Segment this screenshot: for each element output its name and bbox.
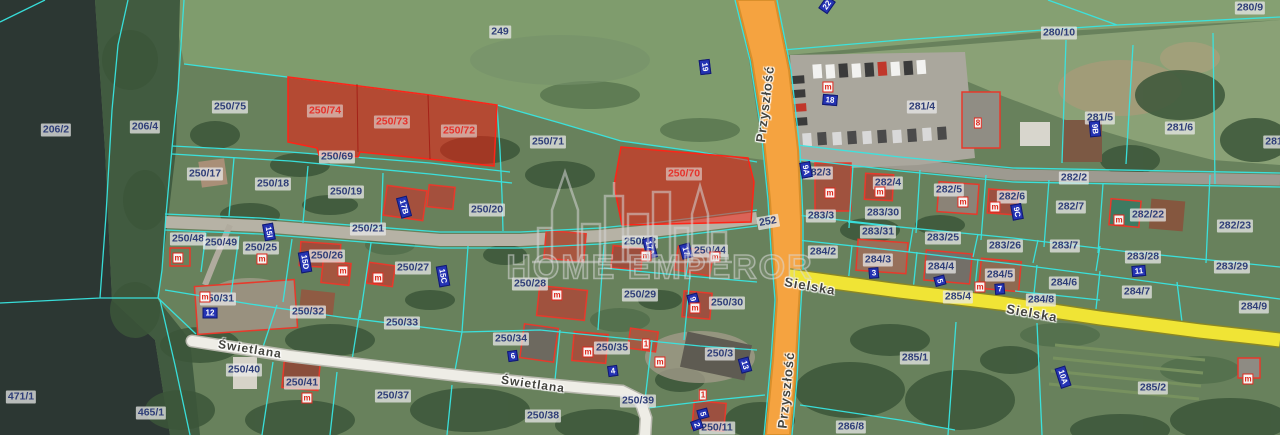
highlighted-parcel-label[interactable]: 250/74 — [307, 105, 343, 118]
building-marker: m — [709, 252, 720, 263]
street-name-label: Przyszłość — [775, 351, 798, 429]
address-badge: 15I — [262, 223, 276, 242]
street-name-label: Przyszłość — [753, 65, 777, 143]
address-badge: 4 — [607, 365, 619, 377]
address-badge: 11 — [1131, 265, 1146, 277]
parcel-label[interactable]: 283/31 — [860, 226, 896, 239]
parcel-label[interactable]: 283/30 — [865, 207, 901, 220]
parcel-label[interactable]: 284/9 — [1239, 301, 1269, 314]
building-marker: m — [974, 282, 985, 293]
parcel-label[interactable]: 283/3 — [806, 210, 836, 223]
building-marker: m — [654, 357, 665, 368]
parcel-label[interactable]: 250/49 — [203, 237, 239, 250]
parcel-label[interactable]: 250/11 — [699, 422, 735, 435]
building-marker: m — [689, 303, 700, 314]
parcel-label[interactable]: 284/4 — [926, 261, 956, 274]
address-badge: 5 — [933, 275, 946, 288]
parcel-label[interactable]: 252 — [756, 214, 779, 231]
address-badge: 22 — [818, 0, 836, 14]
address-badge: 9B — [1089, 120, 1101, 137]
parcel-label[interactable]: 281 — [1263, 136, 1280, 149]
building-marker: 1 — [642, 339, 650, 350]
parcel-label[interactable]: 250/21 — [350, 223, 386, 236]
building-marker: m — [824, 188, 835, 199]
parcel-label[interactable]: 283/25 — [925, 232, 961, 245]
parcel-label[interactable]: 250/3 — [705, 348, 735, 361]
parcel-label[interactable]: 250/27 — [395, 262, 431, 275]
building-marker: 1 — [699, 390, 707, 401]
parcel-label[interactable]: 282/5 — [934, 184, 964, 197]
street-name-label: Świetlana — [500, 373, 566, 396]
parcel-label[interactable]: 284/3 — [863, 254, 893, 267]
parcel-label[interactable]: 250/20 — [469, 204, 505, 217]
parcel-label[interactable]: 285/1 — [900, 352, 930, 365]
address-badge: 19 — [699, 59, 712, 75]
parcel-label[interactable]: 250/41 — [284, 377, 320, 390]
building-marker: m — [337, 266, 348, 277]
address-badge: 17B — [396, 196, 412, 219]
parcel-label[interactable]: 250/18 — [255, 178, 291, 191]
address-badge: 13 — [738, 356, 752, 373]
parcel-label[interactable]: 282/2 — [1059, 172, 1089, 185]
parcel-label[interactable]: 250/69 — [319, 151, 355, 164]
parcel-label[interactable]: 250/39 — [620, 395, 656, 408]
building-marker: 8 — [974, 118, 982, 129]
parcel-label[interactable]: 281/4 — [907, 101, 937, 114]
building-marker: m — [989, 202, 1000, 213]
building-marker: m — [640, 251, 651, 262]
street-name-label: Świetlana — [217, 337, 283, 361]
parcel-label[interactable]: 250/37 — [375, 390, 411, 403]
parcel-label[interactable]: 282/7 — [1056, 201, 1086, 214]
building-marker: m — [301, 393, 312, 404]
building-marker: m — [957, 197, 968, 208]
parcel-label[interactable]: 285/2 — [1138, 382, 1168, 395]
building-marker: m — [372, 273, 383, 284]
parcel-label[interactable]: 250/28 — [512, 278, 548, 291]
parcel-label[interactable]: 250/48 — [170, 233, 206, 246]
building-marker: m — [822, 82, 833, 93]
map-labels-layer: 249206/2206/4250/75250/69250/71250/17250… — [0, 0, 1280, 435]
highlighted-parcel-label[interactable]: 250/73 — [374, 116, 410, 129]
building-marker: m — [256, 254, 267, 265]
parcel-label[interactable]: 284/6 — [1049, 277, 1079, 290]
street-name-label: Sielska — [783, 274, 837, 298]
parcel-label[interactable]: 250/17 — [187, 168, 223, 181]
parcel-label[interactable]: 249 — [489, 26, 511, 39]
parcel-label[interactable]: 250/29 — [622, 289, 658, 302]
highlighted-parcel-label[interactable]: 250/70 — [666, 168, 702, 181]
parcel-label[interactable]: 283/28 — [1125, 251, 1161, 264]
building-marker: m — [551, 290, 562, 301]
building-marker: m — [874, 187, 885, 198]
building-marker: m — [172, 253, 183, 264]
parcel-label[interactable]: 250/30 — [709, 297, 745, 310]
parcel-label[interactable]: 250/33 — [384, 317, 420, 330]
address-badge: 7 — [994, 283, 1005, 295]
address-badge: 12 — [203, 308, 218, 319]
parcel-label[interactable]: 206/4 — [130, 121, 160, 134]
building-marker: m — [1242, 374, 1253, 385]
parcel-label[interactable]: 250/19 — [328, 186, 364, 199]
parcel-label[interactable]: 284/7 — [1122, 286, 1152, 299]
parcel-label[interactable]: 286/8 — [836, 421, 866, 434]
parcel-label[interactable]: 283/26 — [987, 240, 1023, 253]
parcel-label[interactable]: 465/1 — [136, 407, 166, 420]
parcel-label[interactable]: 280/10 — [1041, 27, 1077, 40]
address-badge: 10A — [1055, 365, 1072, 388]
parcel-label[interactable]: 282/22 — [1130, 209, 1166, 222]
parcel-label[interactable]: 283/29 — [1214, 261, 1250, 274]
parcel-label[interactable]: 250/32 — [290, 306, 326, 319]
parcel-label[interactable]: 250/75 — [212, 101, 248, 114]
parcel-label[interactable]: 250/26 — [309, 250, 345, 263]
map-viewport[interactable]: 249206/2206/4250/75250/69250/71250/17250… — [0, 0, 1280, 435]
parcel-label[interactable]: 250/71 — [530, 136, 566, 149]
building-marker: m — [582, 347, 593, 358]
address-badge: 15C — [436, 265, 450, 287]
address-badge: 3 — [868, 267, 879, 279]
parcel-label[interactable]: 284/2 — [808, 246, 838, 259]
parcel-label[interactable]: 285/4 — [943, 291, 973, 304]
parcel-label[interactable]: 250/40 — [226, 364, 262, 377]
parcel-label[interactable]: 282/23 — [1217, 220, 1253, 233]
parcel-label[interactable]: 280/9 — [1235, 2, 1265, 15]
parcel-label[interactable]: 283/7 — [1050, 240, 1080, 253]
parcel-label[interactable]: 471/1 — [6, 391, 36, 404]
parcel-label[interactable]: 281/6 — [1165, 122, 1195, 135]
building-marker: m — [199, 292, 210, 303]
highlighted-parcel-label[interactable]: 250/72 — [441, 125, 477, 138]
address-badge: 9A — [799, 161, 813, 179]
parcel-label[interactable]: 250/35 — [594, 342, 630, 355]
address-badge: 6 — [507, 350, 519, 362]
parcel-label[interactable]: 250/34 — [493, 333, 529, 346]
parcel-label[interactable]: 282/6 — [997, 191, 1027, 204]
building-marker: m — [1113, 215, 1124, 226]
address-badge: 18 — [822, 94, 838, 106]
parcel-label[interactable]: 206/2 — [41, 124, 71, 137]
parcel-label[interactable]: 250/38 — [525, 410, 561, 423]
address-badge: 9C — [1010, 203, 1024, 221]
parcel-label[interactable]: 284/5 — [985, 269, 1015, 282]
